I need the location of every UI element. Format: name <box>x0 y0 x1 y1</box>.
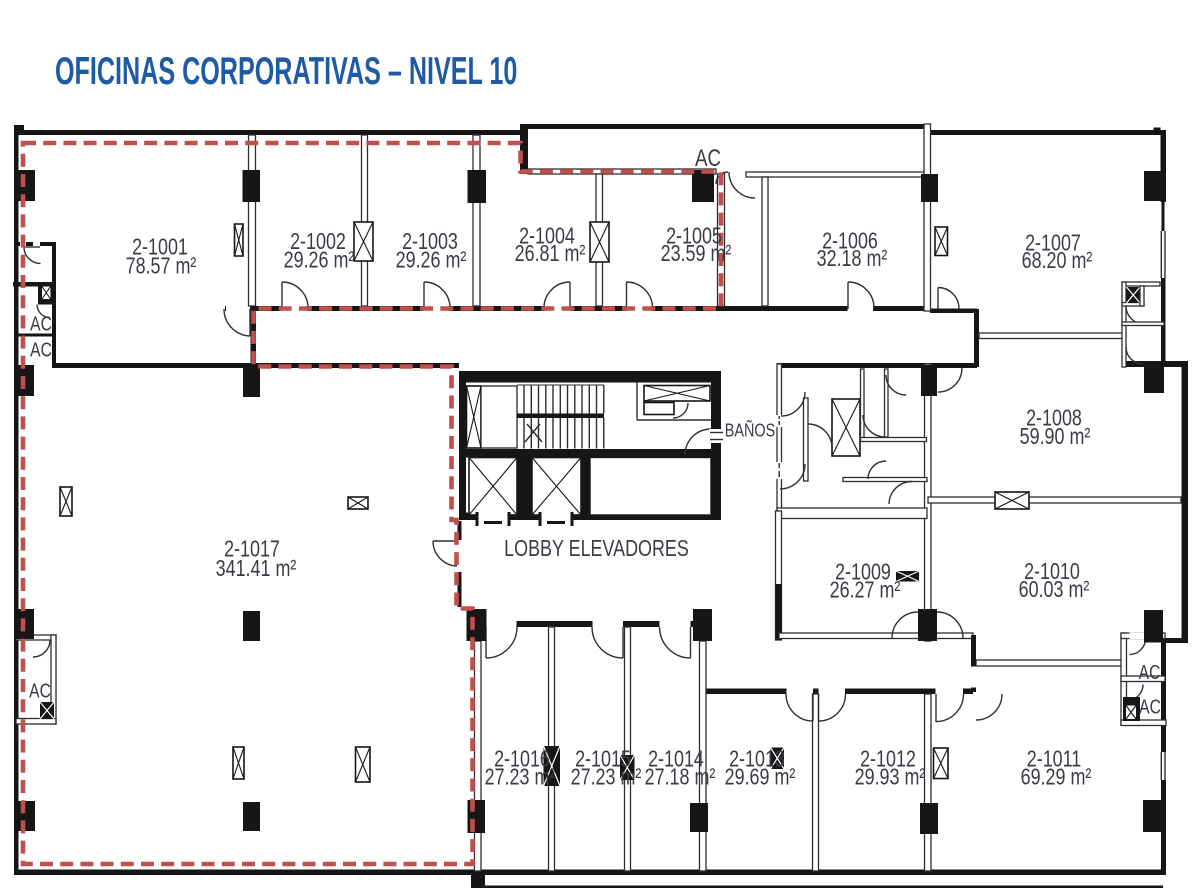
svg-text:AC: AC <box>30 313 52 335</box>
svg-text:27.23 m²: 27.23 m² <box>571 764 642 790</box>
svg-text:AC: AC <box>695 145 721 172</box>
svg-text:26.27 m²: 26.27 m² <box>830 577 901 603</box>
svg-text:OFICINAS CORPORATIVAS – NIVEL: OFICINAS CORPORATIVAS – NIVEL 10 <box>55 48 517 92</box>
svg-text:59.90 m²: 59.90 m² <box>1020 424 1091 450</box>
svg-text:AC: AC <box>30 339 52 361</box>
svg-text:AC: AC <box>1139 661 1161 683</box>
svg-text:341.41 m²: 341.41 m² <box>216 556 297 582</box>
svg-text:60.03 m²: 60.03 m² <box>1019 577 1090 603</box>
svg-text:23.59 m²: 23.59 m² <box>661 241 732 267</box>
svg-text:AC: AC <box>29 680 51 702</box>
svg-text:27.23 m²: 27.23 m² <box>485 764 556 790</box>
svg-text:27.18 m²: 27.18 m² <box>645 764 716 790</box>
svg-text:29.93 m²: 29.93 m² <box>855 764 926 790</box>
svg-text:AC: AC <box>1139 696 1161 718</box>
svg-text:29.26 m²: 29.26 m² <box>284 247 355 273</box>
svg-text:29.26 m²: 29.26 m² <box>396 247 467 273</box>
svg-text:26.81 m²: 26.81 m² <box>515 241 586 267</box>
svg-text:LOBBY ELEVADORES: LOBBY ELEVADORES <box>504 536 689 562</box>
svg-text:32.18 m²: 32.18 m² <box>817 246 888 272</box>
svg-text:78.57 m²: 78.57 m² <box>126 253 197 279</box>
svg-text:29.69 m²: 29.69 m² <box>725 764 796 790</box>
svg-text:69.29 m²: 69.29 m² <box>1021 764 1092 790</box>
svg-text:68.20 m²: 68.20 m² <box>1022 248 1093 274</box>
svg-text:BAÑOS: BAÑOS <box>725 419 775 441</box>
